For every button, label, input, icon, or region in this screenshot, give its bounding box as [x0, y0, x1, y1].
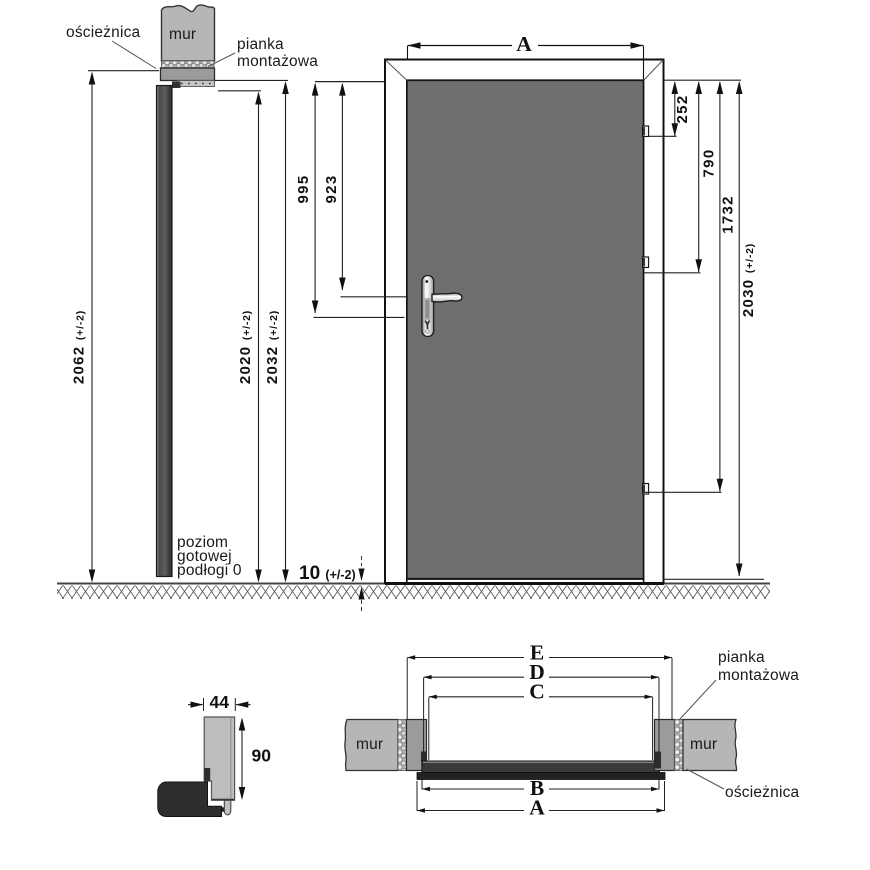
svg-text:mur: mur	[169, 26, 196, 43]
svg-text:pianka: pianka	[237, 36, 284, 53]
svg-text:pianka: pianka	[718, 649, 765, 666]
svg-text:mur: mur	[690, 736, 717, 753]
svg-text:ościeżnica: ościeżnica	[66, 24, 141, 41]
svg-text:790: 790	[701, 149, 718, 178]
svg-text:995: 995	[295, 175, 312, 204]
svg-text:podłogi 0: podłogi 0	[177, 562, 242, 579]
svg-text:montażowa: montażowa	[718, 667, 799, 684]
svg-text:C: C	[529, 680, 545, 704]
svg-text:90: 90	[252, 746, 272, 766]
svg-text:montażowa: montażowa	[237, 53, 318, 70]
svg-text:923: 923	[323, 175, 340, 204]
svg-text:44: 44	[210, 692, 230, 712]
svg-text:A: A	[529, 796, 545, 820]
svg-text:ościeżnica: ościeżnica	[725, 784, 800, 801]
svg-text:mur: mur	[356, 736, 383, 753]
svg-text:1732: 1732	[720, 195, 737, 234]
svg-text:A: A	[516, 32, 532, 56]
svg-text:252: 252	[674, 95, 691, 124]
